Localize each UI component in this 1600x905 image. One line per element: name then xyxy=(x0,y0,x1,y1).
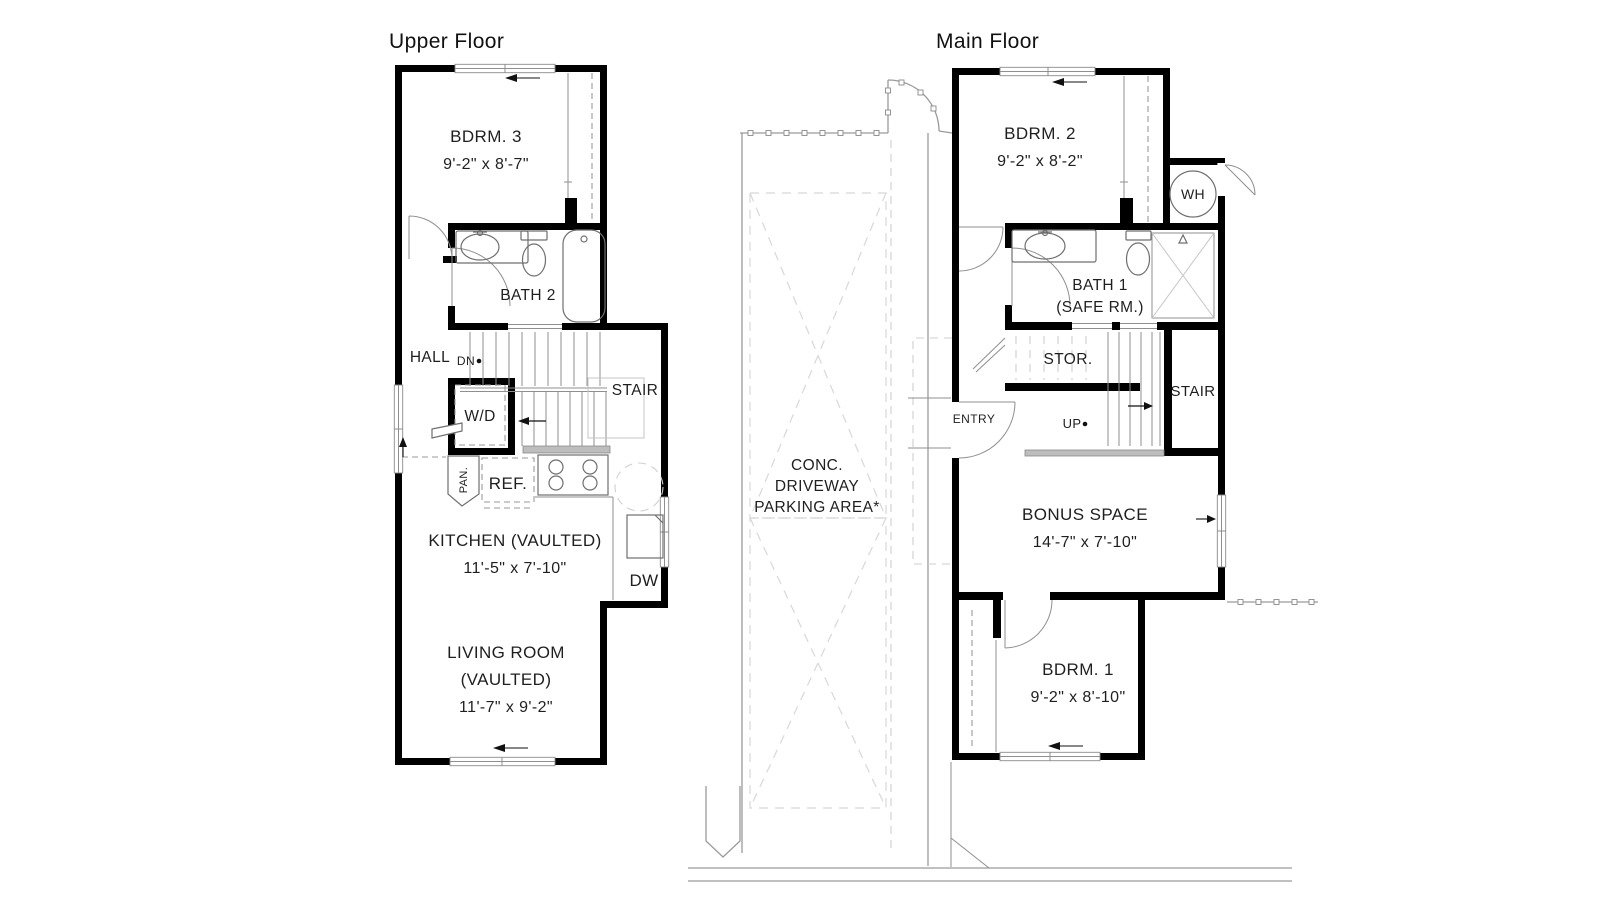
bdrm3-label: BDRM. 3 xyxy=(450,127,522,146)
bdrm1-door-opening xyxy=(1003,591,1050,600)
living-vaulted-label: (VAULTED) xyxy=(461,670,552,689)
corner-counter-dashed xyxy=(615,463,663,511)
stair-landing-bar xyxy=(523,446,610,453)
living-label: LIVING ROOM xyxy=(447,643,565,662)
stair-landing-bar xyxy=(1025,450,1164,456)
driveway-entrance-arrow xyxy=(706,786,740,857)
living-dims: 11'-7" x 9'-2" xyxy=(459,699,553,716)
bedroom2-door xyxy=(959,227,1003,271)
window xyxy=(660,497,668,567)
dn-label: DN xyxy=(457,354,475,368)
hall-label: HALL xyxy=(410,349,450,366)
washer-dryer: W/D xyxy=(455,385,505,445)
main-floor-title: Main Floor xyxy=(936,30,1039,53)
ref-label: REF. xyxy=(489,474,527,493)
upper-floor-plan: Upper Floor xyxy=(389,30,669,766)
bdrm1-dims: 9'-2" x 8'-10" xyxy=(1030,689,1125,706)
bath1-label: BATH 1 xyxy=(1072,277,1128,294)
bath1-vanity-sink xyxy=(1012,230,1096,262)
bdrm2-dims: 9'-2" x 8'-2" xyxy=(997,153,1083,170)
bonus-label: BONUS SPACE xyxy=(1022,505,1148,524)
wh-label: WH xyxy=(1181,186,1205,202)
bath1-sub-label: (SAFE RM.) xyxy=(1056,299,1144,316)
main-floor-plan: Main Floor WH xyxy=(936,30,1255,761)
window-arrow xyxy=(493,744,528,752)
wh-door xyxy=(1225,165,1255,195)
closet-slider-line xyxy=(1120,76,1128,198)
bath2-vanity-sink xyxy=(456,231,528,264)
window-arrow xyxy=(1196,515,1216,523)
up-dot xyxy=(1083,422,1088,427)
entry-door xyxy=(959,402,1015,458)
water-heater: WH xyxy=(1170,171,1216,217)
bath1-door xyxy=(1012,248,1070,306)
stor-label: STOR. xyxy=(1043,351,1092,368)
window xyxy=(455,64,555,72)
bath2-label: BATH 2 xyxy=(500,287,556,304)
street-lines xyxy=(688,868,1292,881)
floor-plan-drawing: CONC. DRIVEWAY PARKING AREA* Upper Floor xyxy=(0,0,1600,905)
bath2-threshold xyxy=(508,322,562,330)
window xyxy=(450,757,555,765)
driveway-label-line1: CONC. xyxy=(791,457,843,474)
pantry: PAN. xyxy=(448,456,479,506)
driveway-label-line3: PARKING AREA* xyxy=(754,499,880,516)
upper-stair-label: STAIR xyxy=(612,382,659,399)
gate-swing-arc xyxy=(888,80,952,133)
dw-label: DW xyxy=(629,571,658,590)
bdrm2-label: BDRM. 2 xyxy=(1004,124,1076,143)
entry-label: ENTRY xyxy=(953,412,995,426)
refrigerator: REF. xyxy=(482,458,534,508)
ironing-shelf xyxy=(432,423,462,438)
window-arrow xyxy=(1048,742,1083,750)
up-label: UP xyxy=(1063,416,1082,431)
window xyxy=(1217,495,1225,567)
lot-line xyxy=(951,762,989,868)
window xyxy=(1000,67,1095,75)
dn-dot xyxy=(477,359,482,364)
bedroom1-door xyxy=(1005,600,1052,648)
bdrm1-label: BDRM. 1 xyxy=(1042,660,1114,679)
closet-slider-line xyxy=(564,73,572,198)
bdrm3-dims: 9'-2" x 8'-7" xyxy=(443,156,529,173)
storage-door xyxy=(973,338,1005,372)
shower xyxy=(1152,233,1214,318)
entry-porch-lines xyxy=(908,398,951,448)
upper-floor-title: Upper Floor xyxy=(389,30,504,53)
bonus-dims: 14'-7" x 7'-10" xyxy=(1033,534,1137,551)
walkway-dashed-outline xyxy=(913,338,952,564)
window-arrow xyxy=(505,74,540,82)
kitchen-sink-cabinet xyxy=(627,515,663,558)
bedroom3-door xyxy=(409,216,452,259)
window xyxy=(394,385,402,473)
fence-posts xyxy=(748,80,936,136)
stair-direction-arrow xyxy=(518,417,529,425)
entry-opening xyxy=(951,402,959,458)
kitchen-label: KITCHEN (VAULTED) xyxy=(428,531,601,550)
wd-label: W/D xyxy=(464,408,495,425)
bathtub xyxy=(563,230,605,322)
floor-plan-sheet: CONC. DRIVEWAY PARKING AREA* Upper Floor xyxy=(0,0,1600,905)
main-stair-label: STAIR xyxy=(1170,383,1215,400)
kitchen-dims: 11'-5" x 7'-10" xyxy=(463,560,566,577)
driveway-label-line2: DRIVEWAY xyxy=(775,478,859,495)
fence-right xyxy=(1227,600,1318,605)
fence-top xyxy=(740,80,952,136)
pan-label: PAN. xyxy=(458,467,470,493)
window xyxy=(1000,752,1100,760)
toilet xyxy=(521,231,547,276)
window-arrow xyxy=(1052,78,1087,86)
parking-stall-lower xyxy=(750,518,886,808)
toilet xyxy=(1126,231,1151,275)
stove xyxy=(538,455,608,495)
wh-door-opening xyxy=(1217,163,1225,196)
